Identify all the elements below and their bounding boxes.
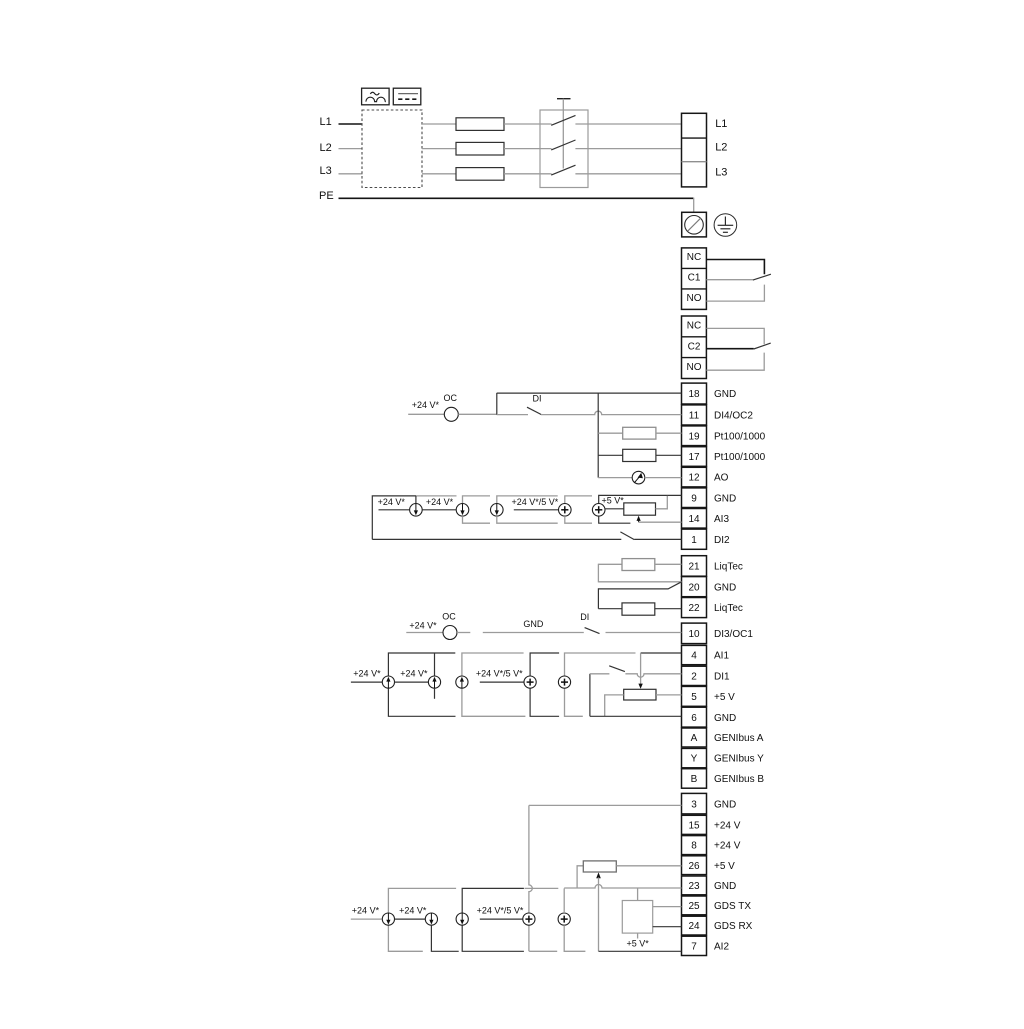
svg-text:+24 V*: +24 V* bbox=[412, 400, 440, 410]
svg-text:+5 V*: +5 V* bbox=[602, 496, 625, 506]
svg-text:GND: GND bbox=[714, 582, 736, 593]
svg-text:GND: GND bbox=[714, 389, 736, 400]
svg-text:9: 9 bbox=[691, 493, 697, 504]
svg-text:26: 26 bbox=[688, 861, 700, 872]
svg-text:Y: Y bbox=[691, 754, 698, 765]
svg-text:15: 15 bbox=[688, 821, 700, 832]
svg-text:7: 7 bbox=[691, 942, 697, 953]
svg-text:12: 12 bbox=[688, 473, 700, 484]
svg-text:20: 20 bbox=[688, 582, 700, 593]
svg-text:+24 V*: +24 V* bbox=[400, 669, 428, 679]
svg-text:NC: NC bbox=[687, 321, 701, 332]
svg-text:+24 V*: +24 V* bbox=[378, 497, 406, 507]
svg-text:+24 V: +24 V bbox=[714, 841, 741, 852]
svg-text:C2: C2 bbox=[688, 341, 701, 352]
svg-text:Pt100/1000: Pt100/1000 bbox=[714, 452, 766, 463]
svg-text:+5 V: +5 V bbox=[714, 861, 735, 872]
svg-text:11: 11 bbox=[689, 411, 700, 422]
svg-text:GND: GND bbox=[714, 881, 736, 892]
svg-text:+24 V*/5 V*: +24 V*/5 V* bbox=[476, 669, 523, 679]
svg-text:+24 V*: +24 V* bbox=[409, 620, 437, 630]
svg-text:+24 V: +24 V bbox=[714, 821, 741, 832]
svg-text:L3: L3 bbox=[320, 165, 332, 177]
svg-text:4: 4 bbox=[691, 651, 697, 662]
svg-text:DI: DI bbox=[533, 393, 542, 403]
svg-text:LiqTec: LiqTec bbox=[714, 603, 743, 614]
svg-text:GND: GND bbox=[714, 713, 736, 724]
svg-text:AI1: AI1 bbox=[714, 651, 729, 662]
svg-text:10: 10 bbox=[688, 629, 700, 640]
svg-text:24: 24 bbox=[688, 921, 700, 932]
svg-text:25: 25 bbox=[688, 901, 700, 912]
svg-text:DI3/OC1: DI3/OC1 bbox=[714, 629, 753, 640]
svg-text:AI3: AI3 bbox=[714, 514, 729, 525]
svg-text:18: 18 bbox=[688, 389, 700, 400]
svg-text:DI1: DI1 bbox=[714, 672, 730, 683]
svg-text:A: A bbox=[691, 733, 698, 744]
svg-text:+5 V: +5 V bbox=[714, 692, 735, 703]
svg-text:GDS TX: GDS TX bbox=[714, 901, 751, 912]
svg-text:14: 14 bbox=[688, 514, 700, 525]
svg-text:PE: PE bbox=[319, 190, 334, 202]
svg-text:+24 V*/5 V*: +24 V*/5 V* bbox=[477, 905, 524, 915]
svg-text:C1: C1 bbox=[688, 273, 701, 284]
svg-text:NO: NO bbox=[687, 362, 702, 373]
svg-text:+24 V*/5 V*: +24 V*/5 V* bbox=[512, 497, 559, 507]
svg-text:DI4/OC2: DI4/OC2 bbox=[714, 411, 753, 422]
svg-text:L2: L2 bbox=[715, 142, 727, 154]
svg-text:GND: GND bbox=[523, 619, 544, 629]
svg-text:21: 21 bbox=[688, 562, 700, 573]
svg-text:GND: GND bbox=[714, 493, 736, 504]
svg-text:GENIbus Y: GENIbus Y bbox=[714, 754, 764, 765]
svg-text:6: 6 bbox=[691, 713, 697, 724]
svg-text:L3: L3 bbox=[715, 167, 727, 179]
svg-text:OC: OC bbox=[444, 393, 458, 403]
svg-text:LiqTec: LiqTec bbox=[714, 562, 743, 573]
svg-text:NC: NC bbox=[687, 252, 701, 263]
svg-text:GENIbus B: GENIbus B bbox=[714, 774, 764, 785]
svg-text:L1: L1 bbox=[715, 118, 727, 130]
svg-text:+24 V*: +24 V* bbox=[353, 669, 381, 679]
svg-text:Pt100/1000: Pt100/1000 bbox=[714, 431, 766, 442]
svg-text:17: 17 bbox=[688, 452, 700, 463]
svg-text:GND: GND bbox=[714, 799, 736, 810]
svg-text:23: 23 bbox=[688, 881, 700, 892]
svg-text:8: 8 bbox=[691, 841, 697, 852]
svg-text:19: 19 bbox=[688, 431, 700, 442]
svg-text:GENIbus A: GENIbus A bbox=[714, 733, 764, 744]
svg-text:L1: L1 bbox=[320, 116, 332, 128]
svg-text:+5 V*: +5 V* bbox=[627, 938, 650, 948]
svg-text:2: 2 bbox=[691, 672, 697, 683]
svg-text:3: 3 bbox=[691, 799, 697, 810]
svg-text:+24 V*: +24 V* bbox=[426, 497, 454, 507]
svg-text:1: 1 bbox=[691, 535, 697, 546]
svg-text:AI2: AI2 bbox=[714, 942, 729, 953]
svg-text:GDS RX: GDS RX bbox=[714, 921, 753, 932]
svg-text:DI2: DI2 bbox=[714, 535, 730, 546]
svg-text:OC: OC bbox=[442, 612, 456, 622]
svg-text:22: 22 bbox=[688, 603, 700, 614]
svg-text:NO: NO bbox=[687, 293, 702, 304]
svg-text:+24 V*: +24 V* bbox=[399, 905, 427, 915]
svg-text:DI: DI bbox=[580, 612, 589, 622]
svg-text:5: 5 bbox=[691, 692, 697, 703]
svg-text:B: B bbox=[691, 774, 698, 785]
svg-text:L2: L2 bbox=[320, 142, 332, 154]
svg-text:AO: AO bbox=[714, 473, 729, 484]
svg-text:+24 V*: +24 V* bbox=[352, 905, 380, 915]
